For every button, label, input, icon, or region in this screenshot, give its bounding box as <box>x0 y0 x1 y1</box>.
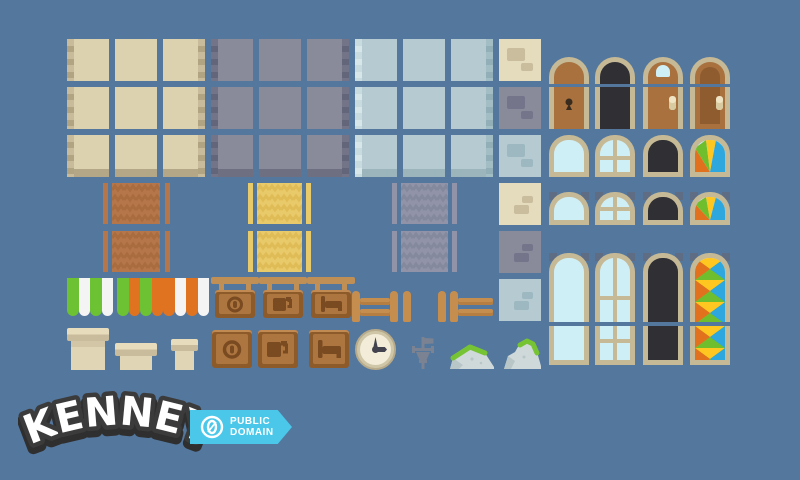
half-window-stained <box>690 192 730 225</box>
awning-stripe <box>198 278 210 316</box>
wall-tile-cream <box>67 135 109 177</box>
fence-post <box>352 291 360 322</box>
window-glass <box>648 258 678 322</box>
mug-icon <box>267 340 289 358</box>
svg-text:KENNEY: KENNEY <box>18 388 218 454</box>
half-window-plain <box>549 192 589 225</box>
carpet-strip <box>392 183 397 224</box>
door-inner <box>695 62 725 84</box>
door-inner <box>600 87 630 129</box>
wall-tile-gray <box>259 39 301 81</box>
window-glass <box>695 140 725 172</box>
brick-tile-cream <box>499 39 541 81</box>
chimney-body-large <box>71 341 105 370</box>
sign-panel <box>313 334 345 364</box>
wall-tile-cream <box>67 87 109 129</box>
door-panel-top <box>690 57 730 84</box>
sign-board <box>311 290 351 318</box>
arch-window-stained <box>690 135 730 177</box>
rock-tall <box>504 337 541 369</box>
chimney-cap-medium <box>115 343 157 356</box>
tall-window-dark-top <box>643 253 683 322</box>
wall-tile-blue <box>403 39 445 81</box>
sign-board <box>212 330 252 368</box>
flat-sign-coin <box>212 330 252 368</box>
carpet-strip <box>103 231 108 272</box>
carpet-strip <box>165 231 170 272</box>
wall-tile-gray <box>259 135 301 177</box>
chimney-cap-large <box>67 328 109 341</box>
carpet-orange <box>112 231 160 272</box>
bed-icon <box>318 340 341 358</box>
fence-post <box>403 291 411 322</box>
half-window-dark <box>643 192 683 225</box>
brick-tile-blue <box>499 279 541 321</box>
carpet-gray <box>401 183 448 224</box>
chimney-body-medium <box>120 356 152 370</box>
awning-stripe <box>117 278 129 316</box>
chevron-pattern <box>401 231 448 272</box>
window-glass <box>648 326 678 360</box>
window-glass <box>695 197 725 220</box>
sign-panel <box>315 294 347 314</box>
sign-bar <box>259 277 307 284</box>
awning-green-orange <box>117 278 163 316</box>
window-glass <box>600 258 630 322</box>
carpet-orange <box>112 183 160 224</box>
awning-stripe <box>79 278 91 316</box>
cc0-icon <box>199 414 225 440</box>
window-glass <box>648 140 678 172</box>
awning-stripe <box>186 278 198 316</box>
wall-tile-gray <box>211 87 253 129</box>
chevron-pattern <box>401 183 448 224</box>
wall-tile-gray <box>307 135 349 177</box>
tall-window-stained-bottom <box>690 326 730 365</box>
badge-line1: PUBLIC <box>230 416 274 427</box>
rock-wide <box>450 343 494 369</box>
wall-tile-blue <box>403 87 445 129</box>
door-inner <box>554 62 584 84</box>
sign-board <box>215 290 255 318</box>
hanging-sign-coin <box>211 277 259 318</box>
sign-board <box>263 290 303 318</box>
wall-tile-cream <box>115 87 157 129</box>
tall-window-plain-top <box>549 253 589 322</box>
door-keyhole-top <box>549 57 589 84</box>
fence-post <box>438 291 446 322</box>
flat-sign-bed <box>309 330 349 368</box>
sign-panel <box>216 334 248 364</box>
door-window-top <box>643 57 683 84</box>
wall-tile-gray <box>307 87 349 129</box>
brick-tile-gray <box>499 231 541 273</box>
brick-tile-cream <box>499 183 541 225</box>
door-dark-top <box>595 57 635 84</box>
hanging-sign-bed <box>307 277 355 318</box>
tall-window-panes-top <box>595 253 635 322</box>
wall-tile-cream <box>163 87 205 129</box>
window-glass <box>695 326 725 360</box>
sign-bar <box>307 277 355 284</box>
awning-stripe <box>152 278 164 316</box>
wall-tile-blue <box>355 87 397 129</box>
keyhole-icon <box>565 98 573 111</box>
carpet-strip <box>306 183 311 224</box>
carpet-strip <box>165 183 170 224</box>
door-panel-body <box>690 87 730 129</box>
door-inner <box>600 62 630 84</box>
window-glass <box>600 197 630 220</box>
stained-glass-fan <box>695 140 725 172</box>
window-glass <box>554 197 584 220</box>
mug-icon <box>273 296 293 312</box>
bed-icon <box>321 296 342 312</box>
awning-stripe <box>140 278 152 316</box>
stained-glass-fan <box>695 197 725 220</box>
wall-tile-cream <box>163 39 205 81</box>
door-panel <box>700 67 720 84</box>
wall-tile-gray <box>307 39 349 81</box>
logo-text: KENNEY <box>18 388 218 454</box>
carpet-strip <box>103 183 108 224</box>
sign-panel <box>262 334 294 364</box>
wall-tile-gray <box>259 87 301 129</box>
chevron-pattern <box>112 183 160 224</box>
chevron-pattern <box>112 231 160 272</box>
wall-tile-blue <box>355 39 397 81</box>
brick-tile-blue <box>499 135 541 177</box>
clock-center <box>372 346 379 353</box>
hanging-sign-mug <box>259 277 307 318</box>
carpet-yellow <box>257 231 302 272</box>
carpet-strip <box>248 183 253 224</box>
door-keyhole-body <box>549 87 589 129</box>
fence-rail <box>458 298 493 305</box>
chevron-pattern <box>257 231 302 272</box>
wall-tile-cream <box>115 135 157 177</box>
tall-window-panes-bottom <box>595 326 635 365</box>
arch-window-panes <box>595 135 635 177</box>
badge-text: PUBLIC DOMAIN <box>230 416 274 438</box>
fence-post <box>450 291 458 322</box>
coin-icon <box>226 296 244 313</box>
wall-tile-cream <box>67 39 109 81</box>
carpet-strip <box>248 231 253 272</box>
tall-window-dark-bottom <box>643 326 683 365</box>
awning-stripe <box>67 278 79 316</box>
awning-stripe <box>102 278 114 316</box>
awning-stripe <box>129 278 141 316</box>
door-dark-body <box>595 87 635 129</box>
flat-sign-mug <box>258 330 298 368</box>
fence-rail <box>360 298 390 305</box>
public-domain-badge: PUBLIC DOMAIN <box>190 410 292 444</box>
wall-tile-gray <box>211 39 253 81</box>
kenney-logo: KENNEY KENNEY <box>18 386 218 466</box>
sign-panel <box>219 294 251 314</box>
fence-post <box>390 291 398 322</box>
chimney-body-small <box>175 351 194 370</box>
chimney-cap-small <box>171 339 198 351</box>
chevron-pattern <box>257 183 302 224</box>
door-handle <box>716 96 723 110</box>
fence-rail <box>360 309 390 316</box>
window-glass <box>695 258 725 322</box>
wall-tile-blue <box>451 39 493 81</box>
asset-sheet: KENNEY KENNEY PUBLIC DOMAIN <box>0 0 800 480</box>
wall-tile-blue <box>451 87 493 129</box>
sign-board <box>309 330 349 368</box>
wall-tile-gray <box>211 135 253 177</box>
coin-icon <box>222 340 242 359</box>
window-glass <box>600 140 630 172</box>
door-window <box>656 65 670 77</box>
weather-vane-icon <box>412 337 434 369</box>
wall-tile-blue <box>355 135 397 177</box>
sign-bar <box>211 277 259 284</box>
door-window-body <box>643 87 683 129</box>
sign-panel <box>267 294 299 314</box>
awning-stripe <box>163 278 175 316</box>
sign-board <box>258 330 298 368</box>
wall-tile-blue <box>451 135 493 177</box>
stained-glass-pattern <box>695 258 725 322</box>
window-glass <box>648 197 678 220</box>
window-glass <box>554 326 584 360</box>
fence-rail <box>458 309 493 316</box>
carpet-yellow <box>257 183 302 224</box>
badge-line2: DOMAIN <box>230 427 274 438</box>
wall-tile-blue <box>403 135 445 177</box>
arch-window-dark <box>643 135 683 177</box>
wall-tile-cream <box>163 135 205 177</box>
carpet-strip <box>452 231 457 272</box>
awning-green-white <box>67 278 113 316</box>
awning-stripe <box>175 278 187 316</box>
carpet-strip <box>452 183 457 224</box>
half-window-panes <box>595 192 635 225</box>
carpet-strip <box>306 231 311 272</box>
carpet-strip <box>392 231 397 272</box>
wall-tile-cream <box>115 39 157 81</box>
window-glass <box>554 258 584 322</box>
awning-orange-white <box>163 278 209 316</box>
arch-window-plain <box>549 135 589 177</box>
window-glass <box>600 326 630 360</box>
door-handle <box>669 96 676 110</box>
stained-glass-pattern <box>695 326 725 360</box>
clock <box>355 329 396 370</box>
tall-window-plain-bottom <box>549 326 589 365</box>
carpet-gray <box>401 231 448 272</box>
window-glass <box>554 140 584 172</box>
awning-stripe <box>90 278 102 316</box>
brick-tile-gray <box>499 87 541 129</box>
tall-window-stained-top <box>690 253 730 322</box>
